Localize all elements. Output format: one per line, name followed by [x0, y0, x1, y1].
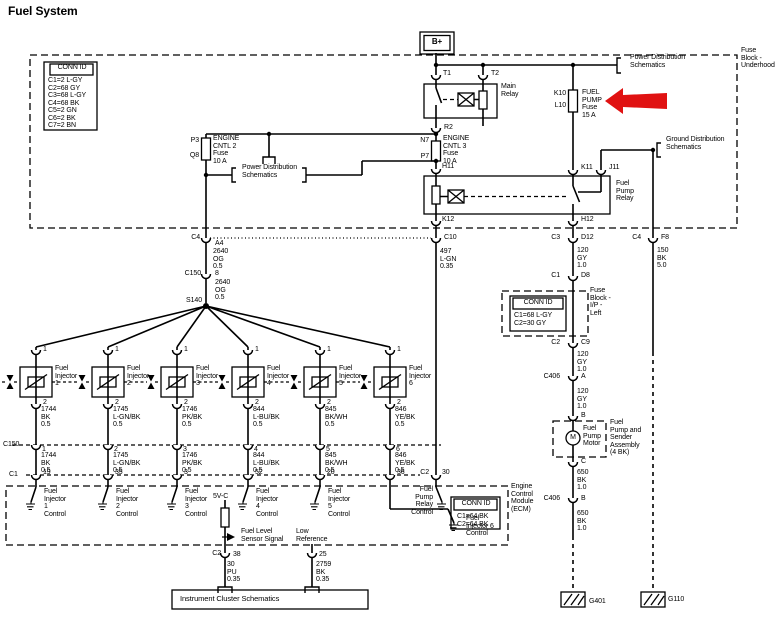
- connid-ip-header: CONN ID: [513, 299, 563, 307]
- terminal-r2: R2: [444, 124, 453, 132]
- terminal-t1: T1: [443, 70, 451, 78]
- injector-5-pin1: 1: [327, 346, 331, 354]
- terminal-q8: Q8: [190, 152, 199, 160]
- conn-c2-ecm: C2: [420, 469, 429, 477]
- diagram-title: Fuel System: [8, 5, 78, 18]
- terminal-l10: L10: [555, 102, 566, 110]
- conn-c4-left: C4: [191, 234, 200, 242]
- ecm-injector-1-control: Fuel Injector 1 Control: [44, 488, 66, 518]
- injector-5-ecm-pin: 20: [327, 469, 335, 477]
- conn-c150-mid: C150: [185, 270, 201, 278]
- fuel-pump-relay-label: Fuel Pump Relay: [616, 180, 634, 203]
- connid-ip-list: C1=68 L-GY C2=30 GY: [514, 312, 552, 327]
- instrument-cluster-ref: Instrument Cluster Schematics: [180, 595, 279, 603]
- injector-1-ecm-pin: 19: [43, 469, 51, 477]
- wire-120-gy-a: 120 GY 1.0: [577, 247, 588, 270]
- main-relay-label: Main Relay: [501, 83, 518, 98]
- power-dist-ref-mid: Power Distribution Schematics: [242, 164, 297, 179]
- injector-2-pin1: 1: [115, 346, 119, 354]
- engine-cntl3-fuse-label: ENGINE CNTL 3 Fuse 10 A: [443, 135, 469, 165]
- injector-3-pin1: 1: [184, 346, 188, 354]
- connid-ecm-list: C1=64 BK C2=64 BK: [457, 513, 488, 528]
- motor-m: M: [566, 434, 580, 442]
- injector-4-label: Fuel Injector 4: [267, 365, 289, 388]
- injector-2-ecm-pin: 35: [115, 469, 123, 477]
- injector-6-pin1: 1: [397, 346, 401, 354]
- injector-1-wire-upper: 1744 BK 0.5: [41, 406, 56, 429]
- engine-cntl2-fuse-label: ENGINE CNTL 2 Fuse 10 A: [213, 135, 239, 165]
- conn-c1-left: C1: [9, 471, 18, 479]
- splice-s140: S140: [186, 297, 202, 305]
- label-layer: Fuel SystemCONN IDC1=2 L-GY C2=68 GY C3=…: [0, 0, 782, 630]
- injector-1-pin1: 1: [43, 346, 47, 354]
- conn-c2-bottom: C2: [212, 550, 221, 558]
- injector-1-label: Fuel Injector 1: [55, 365, 77, 388]
- conn-c3: C3: [551, 234, 560, 242]
- terminal-j11: J11: [609, 164, 619, 172]
- conn-c10: C10: [444, 234, 457, 242]
- terminal-n7: N7: [420, 137, 429, 145]
- pin-c9: C9: [581, 339, 590, 347]
- injector-4-wire-upper: 844 L-BU/BK 0.5: [253, 406, 280, 429]
- fuel-level-sensor-signal: Fuel Level Sensor Signal: [241, 528, 283, 543]
- terminal-h12: H12: [581, 216, 594, 224]
- conn-c406-b: C406: [544, 495, 560, 503]
- injector-5-label: Fuel Injector 5: [339, 365, 361, 388]
- injector-2-label: Fuel Injector 2: [127, 365, 149, 388]
- power-dist-ref-top: Power Distribution Schematics: [630, 54, 685, 69]
- pin-b: B: [581, 412, 586, 420]
- wire-150-bk: 150 BK 5.0: [657, 247, 668, 270]
- wire-2640-og-a: 2640 OG 0.5: [213, 248, 228, 271]
- ground-dist-ref: Ground Distribution Schematics: [666, 136, 724, 151]
- wire-2640-og-b: 2640 OG 0.5: [215, 279, 230, 302]
- conn-c406-a: C406: [544, 373, 560, 381]
- injector-6-wire-upper: 846 YE/BK 0.5: [395, 406, 415, 429]
- terminal-t2: T2: [491, 70, 499, 78]
- injector-3-label: Fuel Injector 3: [196, 365, 218, 388]
- low-reference: Low Reference: [296, 528, 327, 543]
- ecm-injector-2-control: Fuel Injector 2 Control: [116, 488, 138, 518]
- ecm-injector-4-control: Fuel Injector 4 Control: [256, 488, 278, 518]
- ecm-injector-3-control: Fuel Injector 3 Control: [185, 488, 207, 518]
- battery-b-plus: B+: [420, 38, 454, 47]
- terminal-h11: H11: [442, 163, 454, 171]
- pin-b2: B: [581, 495, 586, 503]
- terminal-k12: K12: [442, 216, 454, 224]
- pin-a4: A4: [215, 240, 223, 248]
- conn-c150-left: C150: [3, 441, 19, 449]
- ecm-5v-ref: 5V-C: [213, 493, 228, 501]
- ground-g401: G401: [589, 598, 606, 606]
- wire-497-lgn: 497 L-GN 0.35: [440, 248, 456, 271]
- pin-25: 25: [319, 551, 327, 559]
- injector-3-ecm-pin: 3: [184, 469, 188, 477]
- wire-650-bk-a: 650 BK 1.0: [577, 469, 588, 492]
- connid-underhood-list: C1=2 L-GY C2=68 GY C3=68 L-GY C4=68 BK C…: [48, 77, 86, 130]
- pin-8: 8: [215, 270, 219, 278]
- injector-4-ecm-pin: 52: [255, 469, 263, 477]
- fuse-block-underhood-label: Fuse Block - Underhood: [741, 47, 775, 70]
- fuel-pump-fuse-label: FUEL PUMP Fuse 15 A: [582, 89, 602, 119]
- connid-ecm-header: CONN ID: [455, 500, 497, 508]
- injector-2-wire-upper: 1745 L-GN/BK 0.5: [113, 406, 140, 429]
- pin-a: A: [581, 373, 586, 381]
- wire-120-gy-b: 120 GY 1.0: [577, 351, 588, 374]
- wire-650-bk-b: 650 BK 1.0: [577, 510, 588, 533]
- connid-underhood-header: CONN ID: [50, 64, 94, 72]
- terminal-k11: K11: [581, 164, 593, 172]
- ground-g110: G110: [668, 596, 684, 604]
- pin-38: 38: [233, 551, 241, 559]
- wire-30-pu: 30 PU 0.35: [227, 561, 240, 584]
- wire-2759-bk: 2759 BK 0.35: [316, 561, 331, 584]
- pin-c: C: [581, 458, 586, 466]
- ecm-fuel-pump-relay-control: Fuel Pump Relay Control: [411, 486, 433, 516]
- fuel-pump-motor-label: Fuel Pump Motor: [583, 425, 601, 448]
- injector-5-wire-upper: 845 BK/WH 0.5: [325, 406, 347, 429]
- conn-c1-ip: C1: [551, 272, 560, 280]
- pin-f8: F8: [661, 234, 669, 242]
- terminal-p3: P3: [191, 137, 199, 145]
- injector-6-ecm-pin: 36: [397, 469, 405, 477]
- pin-30: 30: [442, 469, 450, 477]
- injector-3-wire-upper: 1746 PK/BK 0.5: [182, 406, 202, 429]
- fuel-pump-assembly-label: Fuel Pump and Sender Assembly (4 BK): [610, 419, 641, 457]
- pin-d8: D8: [581, 272, 590, 280]
- injector-4-pin1: 1: [255, 346, 259, 354]
- terminal-p7: P7: [421, 153, 429, 161]
- injector-6-label: Fuel Injector 6: [409, 365, 431, 388]
- ecm-label: Engine Control Module (ECM): [511, 483, 533, 513]
- fuse-block-ip-label: Fuse Block - I/P - Left: [590, 287, 611, 317]
- terminal-k10: K10: [554, 90, 566, 98]
- schematic-canvas: Fuel SystemCONN IDC1=2 L-GY C2=68 GY C3=…: [0, 0, 782, 630]
- pin-d12: D12: [581, 234, 594, 242]
- wire-120-gy-c: 120 GY 1.0: [577, 388, 588, 411]
- ecm-injector-5-control: Fuel Injector 5 Control: [328, 488, 350, 518]
- conn-c4-right: C4: [632, 234, 641, 242]
- conn-c2-ip: C2: [551, 339, 560, 347]
